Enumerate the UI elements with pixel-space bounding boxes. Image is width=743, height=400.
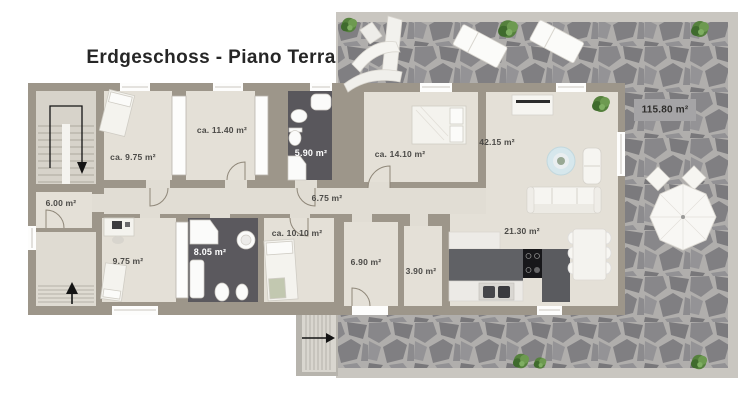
room-label-bathroom-bottom: 8.05 m² (194, 247, 226, 257)
dining-table-icon (568, 229, 611, 280)
counter-icon (449, 232, 500, 249)
counter-dark-icon (542, 249, 570, 302)
terrace-area-label: 115.80 m² (642, 105, 689, 116)
bed-icon (264, 239, 298, 301)
bed-icon (101, 263, 127, 302)
toilet-icon (289, 131, 301, 146)
toilet-icon (215, 283, 229, 301)
sideboard-icon (512, 95, 553, 115)
room-label-room-center-top: ca. 11.40 m² (197, 125, 247, 135)
parasol-icon (650, 184, 716, 250)
room-label-hallway-lower: 6.90 m² (351, 257, 382, 267)
stove-icon (523, 249, 542, 278)
lobby-floor (36, 232, 96, 306)
room-label-storage-room: 3.90 m² (406, 266, 437, 276)
counter-dark-icon (449, 249, 523, 281)
room-label-bedroom-top-left: ca. 9.75 m² (110, 152, 156, 162)
floorplan-page: Erdgeschoss - Piano Terra ca. 9.75 m² ca… (0, 0, 743, 400)
rug-icon (547, 147, 575, 175)
room-label-bathroom-top: 5.90 m² (295, 148, 327, 158)
hallway-upper-floor (104, 188, 486, 214)
room-label-bedroom-bottom-center: ca. 10.10 m² (272, 228, 323, 238)
bidet-icon (236, 284, 248, 300)
sink-unit-icon (479, 283, 514, 300)
bathtub-icon (190, 260, 204, 298)
sofa-icon (527, 187, 601, 213)
bed-icon (412, 106, 466, 144)
chair-icon (112, 236, 124, 244)
room-label-kitchen-dining: 21.30 m² (504, 226, 540, 236)
room-label-bedroom-bottom-left: 9.75 m² (113, 256, 144, 266)
entry-steps (296, 306, 338, 376)
armchair-icon (583, 148, 601, 184)
bathtub-icon (311, 94, 331, 110)
room-label-room-left: 6.00 m² (46, 198, 77, 208)
room-label-hallway-upper: 6.75 m² (312, 193, 343, 203)
room-label-living-room: 42.15 m² (479, 137, 515, 147)
page-title: Erdgeschoss - Piano Terra (86, 47, 335, 69)
sink-icon (291, 110, 307, 123)
room-label-bedroom-right: ca. 14.10 m² (375, 149, 426, 159)
